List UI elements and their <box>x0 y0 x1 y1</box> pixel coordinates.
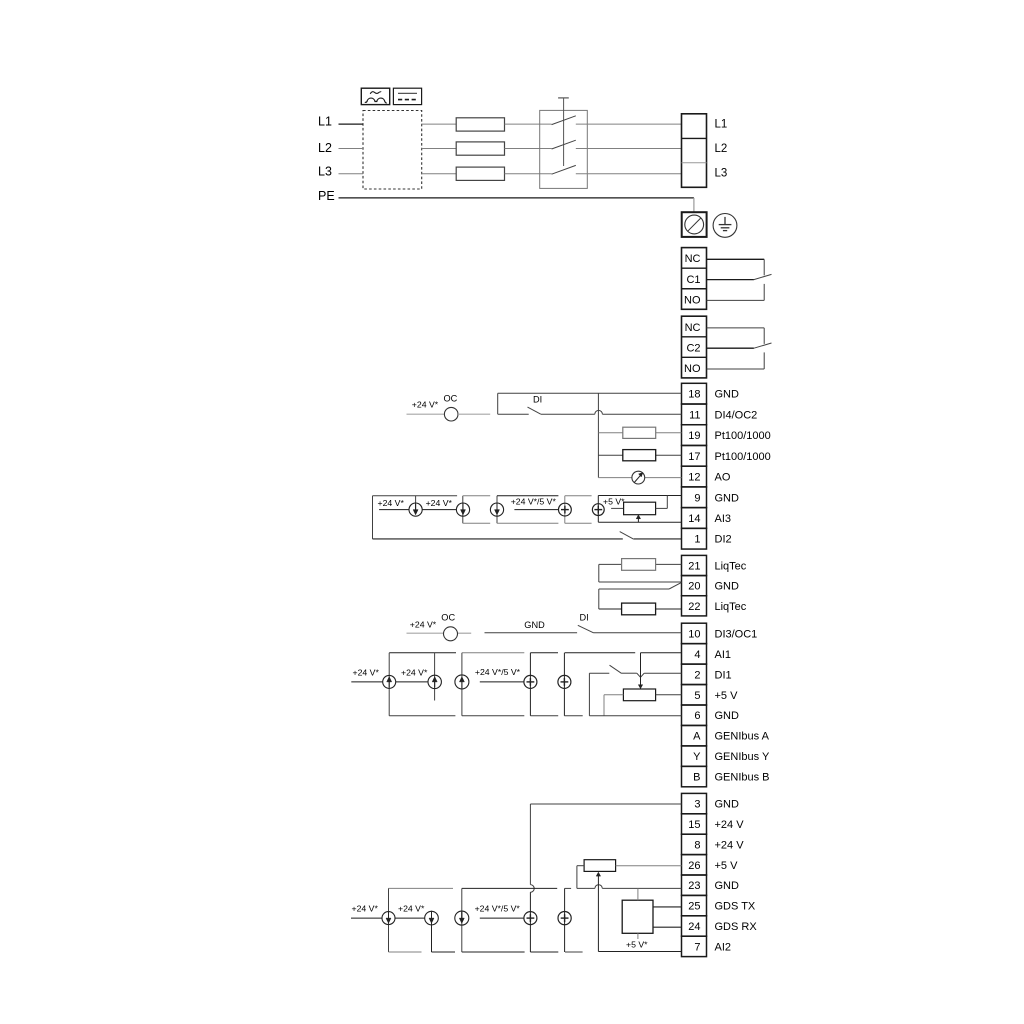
svg-text:AI2: AI2 <box>715 941 732 953</box>
svg-text:DI3/OC1: DI3/OC1 <box>715 628 758 640</box>
svg-text:25: 25 <box>688 901 700 913</box>
svg-text:DI4/OC2: DI4/OC2 <box>715 409 758 421</box>
svg-text:GND: GND <box>715 710 740 722</box>
svg-text:GDS RX: GDS RX <box>715 921 758 933</box>
svg-text:NO: NO <box>684 294 701 306</box>
svg-text:+24 V: +24 V <box>715 819 745 831</box>
svg-text:5: 5 <box>694 690 700 702</box>
svg-text:6: 6 <box>694 710 700 722</box>
svg-text:+24 V*/5 V*: +24 V*/5 V* <box>475 667 521 677</box>
svg-text:L2: L2 <box>715 143 728 155</box>
svg-text:L3: L3 <box>318 164 332 178</box>
svg-text:PE: PE <box>318 189 335 203</box>
svg-text:12: 12 <box>688 472 700 484</box>
svg-text:+24 V*: +24 V* <box>353 667 380 677</box>
svg-text:+24 V*: +24 V* <box>410 620 437 630</box>
svg-text:LiqTec: LiqTec <box>715 601 747 613</box>
svg-text:DI2: DI2 <box>715 534 732 546</box>
svg-text:OC: OC <box>441 613 455 623</box>
svg-text:23: 23 <box>688 880 700 892</box>
svg-text:2: 2 <box>694 669 700 681</box>
svg-text:+5 V*: +5 V* <box>603 497 625 507</box>
svg-text:GDS TX: GDS TX <box>715 901 756 913</box>
svg-text:+24 V*: +24 V* <box>398 904 425 914</box>
svg-text:OC: OC <box>444 393 458 403</box>
svg-text:4: 4 <box>694 649 700 661</box>
svg-text:+5 V: +5 V <box>715 860 739 872</box>
svg-text:11: 11 <box>689 409 700 421</box>
svg-text:AO: AO <box>715 472 731 484</box>
svg-text:NO: NO <box>684 363 701 375</box>
svg-text:7: 7 <box>694 941 700 953</box>
svg-text:B: B <box>693 772 700 784</box>
svg-text:DI1: DI1 <box>715 669 732 681</box>
svg-text:+5 V*: +5 V* <box>626 939 648 949</box>
svg-text:AI1: AI1 <box>715 649 732 661</box>
svg-text:+24 V*/5 V*: +24 V*/5 V* <box>511 497 557 507</box>
svg-text:GENIbus Y: GENIbus Y <box>715 751 770 763</box>
svg-text:DI: DI <box>580 613 589 623</box>
svg-text:GND: GND <box>715 581 740 593</box>
svg-text:24: 24 <box>688 921 700 933</box>
svg-text:NC: NC <box>685 253 701 265</box>
svg-text:AI3: AI3 <box>715 513 732 525</box>
svg-text:GND: GND <box>715 880 740 892</box>
svg-text:C2: C2 <box>686 342 700 354</box>
svg-text:Y: Y <box>693 751 701 763</box>
svg-text:L3: L3 <box>715 167 728 179</box>
svg-text:14: 14 <box>688 513 700 525</box>
svg-text:+24 V*/5 V*: +24 V*/5 V* <box>475 903 521 913</box>
svg-text:Pt100/1000: Pt100/1000 <box>715 430 771 442</box>
svg-text:A: A <box>693 731 701 743</box>
svg-text:10: 10 <box>688 628 700 640</box>
svg-text:+24 V*: +24 V* <box>378 498 405 508</box>
svg-text:+24 V*: +24 V* <box>412 400 439 410</box>
svg-text:LiqTec: LiqTec <box>715 560 747 572</box>
svg-text:DI: DI <box>533 394 542 404</box>
svg-text:+24 V*: +24 V* <box>426 498 453 508</box>
svg-text:1: 1 <box>694 534 700 546</box>
svg-text:NC: NC <box>685 322 701 334</box>
svg-text:GND: GND <box>715 389 740 401</box>
svg-text:+5 V: +5 V <box>715 690 739 702</box>
svg-text:21: 21 <box>688 560 700 572</box>
svg-text:GENIbus A: GENIbus A <box>715 731 770 743</box>
svg-text:17: 17 <box>688 451 700 463</box>
svg-text:19: 19 <box>688 430 700 442</box>
svg-text:20: 20 <box>688 581 700 593</box>
svg-text:GND: GND <box>715 492 740 504</box>
svg-text:GENIbus B: GENIbus B <box>715 772 770 784</box>
svg-text:18: 18 <box>688 389 700 401</box>
svg-text:+24 V: +24 V <box>715 839 745 851</box>
svg-text:GND: GND <box>715 799 740 811</box>
svg-text:C1: C1 <box>686 274 700 286</box>
svg-text:+24 V*: +24 V* <box>401 667 428 677</box>
svg-text:L1: L1 <box>715 119 728 131</box>
svg-text:L1: L1 <box>318 115 332 129</box>
svg-text:9: 9 <box>694 492 700 504</box>
svg-text:L2: L2 <box>318 141 332 155</box>
svg-text:8: 8 <box>694 839 700 851</box>
svg-text:GND: GND <box>524 620 545 630</box>
svg-text:+24 V*: +24 V* <box>352 904 379 914</box>
svg-text:15: 15 <box>688 819 700 831</box>
svg-text:22: 22 <box>688 601 700 613</box>
svg-text:26: 26 <box>688 860 700 872</box>
svg-text:Pt100/1000: Pt100/1000 <box>715 451 771 463</box>
svg-text:3: 3 <box>694 799 700 811</box>
